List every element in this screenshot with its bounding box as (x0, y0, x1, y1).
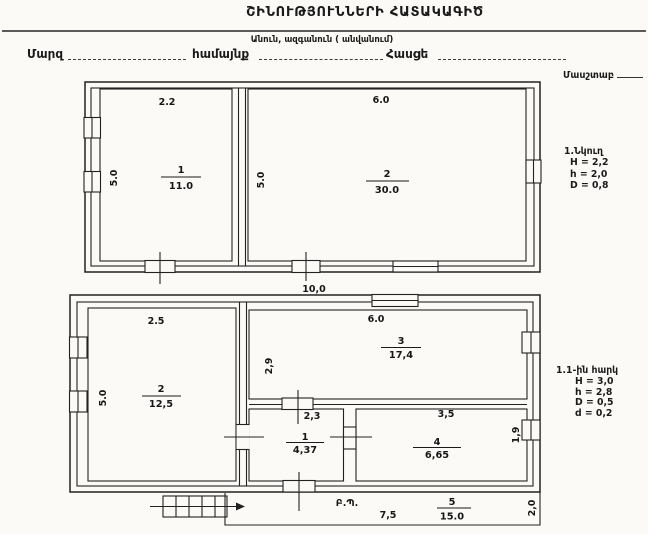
floor-room4-label: 4 6,65 (413, 437, 461, 461)
window-icon (84, 118, 101, 139)
door-icon (330, 427, 372, 449)
veranda-depth-dim: 2,0 (527, 499, 538, 516)
svg-text:17,4: 17,4 (389, 350, 413, 361)
basement-room2-width-dim: 6.0 (373, 95, 390, 106)
window-icon (70, 391, 88, 412)
svg-text:12,5: 12,5 (149, 399, 173, 410)
basement-plan: 2.2 6.0 5.0 5.0 1 11.0 2 30.0 10,0 (84, 82, 541, 295)
basement-room1-width-dim: 2.2 (159, 97, 176, 108)
basement-room2-depth-dim: 5.0 (256, 171, 267, 188)
basement-overall-width-dim: 10,0 (302, 284, 326, 295)
floor-outer-wall (70, 295, 540, 492)
stairs-arrow-icon (236, 503, 245, 511)
window-icon (522, 420, 540, 440)
svg-text:1: 1 (302, 432, 309, 443)
basement-room2-label: 2 30.0 (366, 169, 409, 196)
door-icon (283, 472, 315, 511)
veranda-label: Բ.Պ. (336, 498, 358, 509)
svg-text:11.0: 11.0 (169, 181, 193, 192)
door-icon (224, 425, 264, 450)
stairs (150, 496, 245, 517)
floor-door-width-dim: 2,3 (304, 411, 321, 422)
first-floor-plan: 2.5 6.0 5.0 2,9 2,3 3,5 1,9 Բ.Պ. 7,5 2,0… (70, 295, 541, 526)
basement-room1-depth-dim: 5.0 (109, 169, 120, 186)
door-icon (145, 252, 175, 284)
svg-text:3: 3 (398, 336, 405, 347)
svg-text:4,37: 4,37 (293, 445, 317, 456)
basement-outer-wall (85, 82, 540, 272)
floor-room3-label: 3 17,4 (381, 336, 421, 361)
svg-text:2: 2 (384, 169, 391, 180)
svg-text:30.0: 30.0 (375, 185, 399, 196)
svg-text:5: 5 (449, 497, 456, 508)
door-icon (292, 252, 320, 281)
window-icon (372, 295, 418, 307)
window-icon (393, 261, 438, 272)
svg-text:6,65: 6,65 (425, 450, 449, 461)
floor-room3-width-dim: 6.0 (368, 314, 385, 325)
floor-room4-depth-dim: 1,9 (511, 427, 522, 444)
basement-inner-wall (91, 88, 534, 266)
basement-room1-label: 1 11.0 (161, 165, 201, 192)
svg-text:2: 2 (158, 384, 165, 395)
floor-room5-label: 5 15.0 (437, 497, 471, 523)
window-icon (70, 337, 88, 358)
floor-room2-depth-dim: 5.0 (98, 389, 109, 406)
floor-room3-depth-dim: 2,9 (264, 358, 275, 375)
floor-inner-wall (77, 302, 533, 486)
window-icon (522, 332, 540, 353)
floor-room2-label: 2 12,5 (142, 384, 181, 410)
svg-text:15.0: 15.0 (440, 512, 464, 523)
veranda-length-dim: 7,5 (380, 510, 397, 521)
window-icon (526, 160, 541, 183)
svg-text:4: 4 (434, 437, 441, 448)
svg-text:1: 1 (178, 165, 185, 176)
floor-room4-width-dim: 3,5 (438, 409, 455, 420)
floor-plan-drawing: 2.2 6.0 5.0 5.0 1 11.0 2 30.0 10,0 (0, 0, 648, 534)
floor-room2-width-dim: 2.5 (148, 316, 165, 327)
window-icon (84, 172, 101, 193)
floor-room1-label: 1 4,37 (286, 432, 324, 456)
